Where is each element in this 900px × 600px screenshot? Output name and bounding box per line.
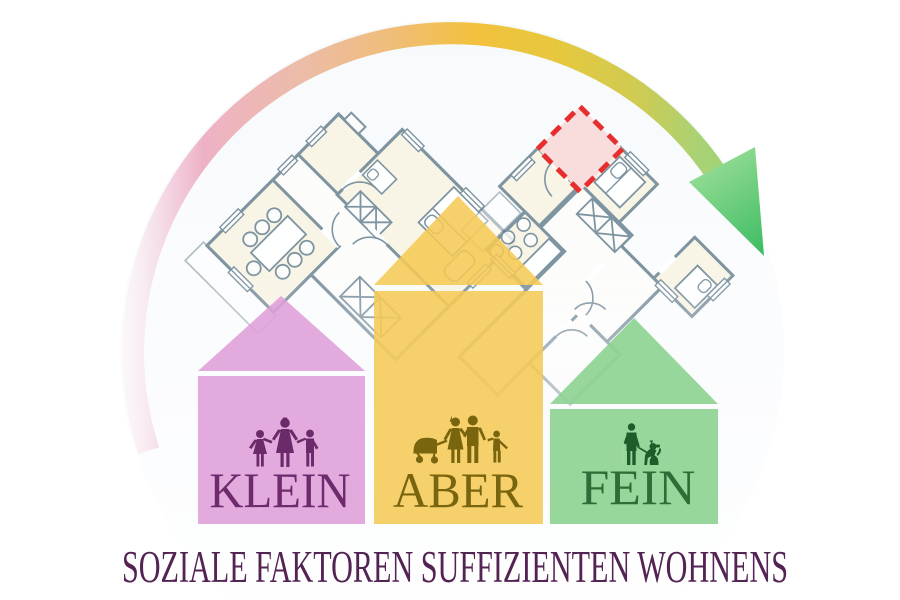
svg-text:KLEIN: KLEIN xyxy=(210,462,351,518)
svg-text:SOZIALE FAKTOREN SUFFIZIENTEN: SOZIALE FAKTOREN SUFFIZIENTEN WOHNENS xyxy=(122,542,788,592)
svg-text:ABER: ABER xyxy=(393,462,524,518)
svg-text:FEIN: FEIN xyxy=(581,459,696,515)
